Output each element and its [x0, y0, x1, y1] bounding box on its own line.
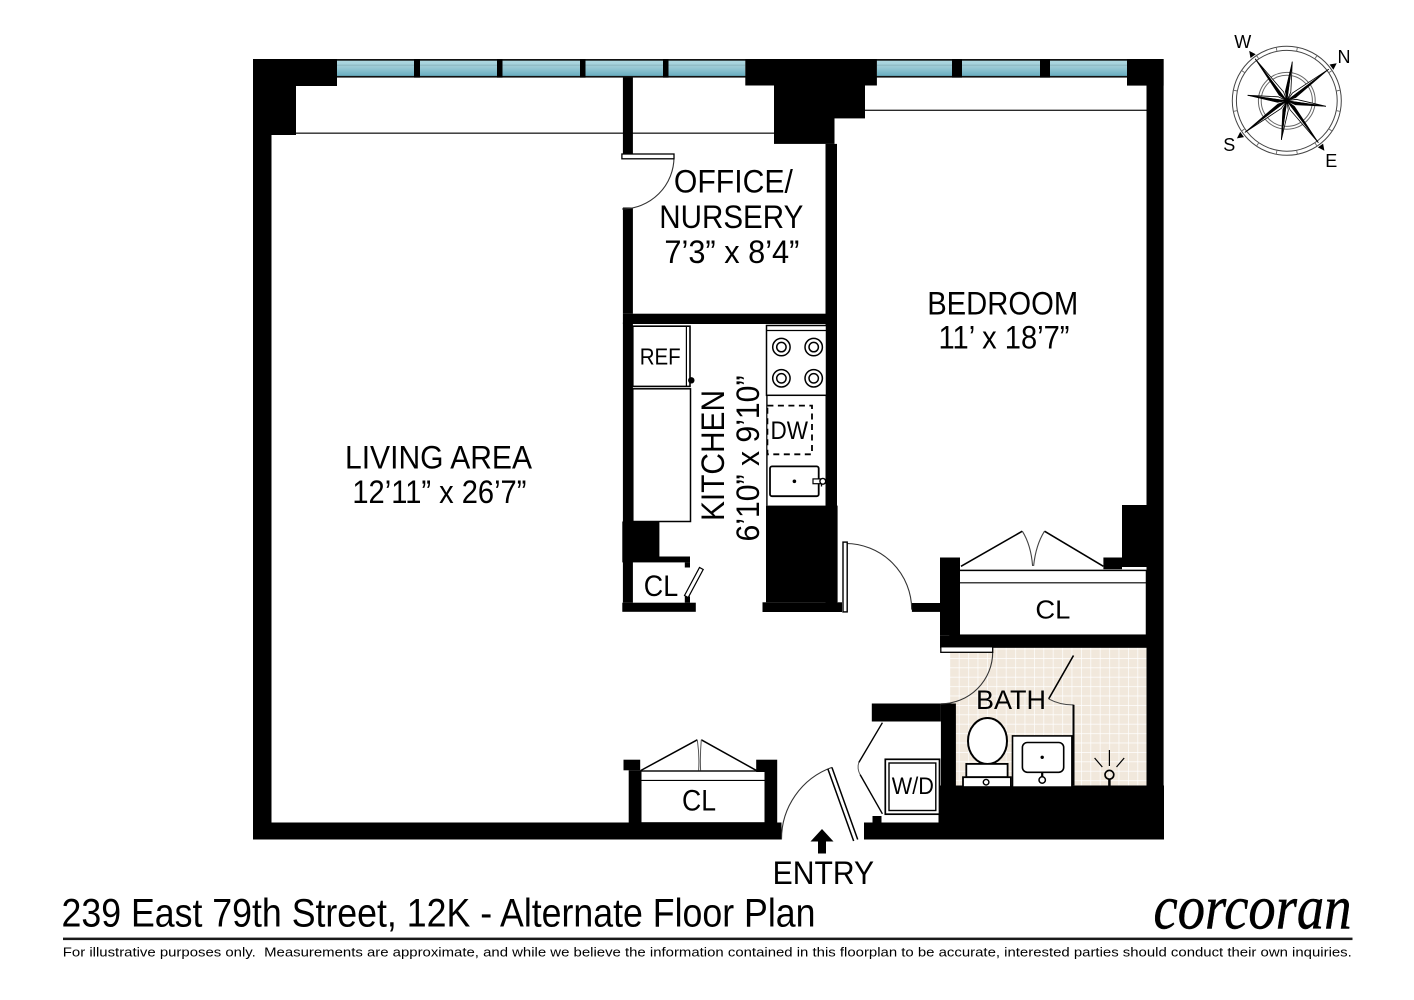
svg-text:corcoran: corcoran: [1154, 875, 1352, 943]
svg-text:For illustrative purposes only: For illustrative purposes only. Measurem…: [63, 945, 1352, 960]
svg-text:11’ x 18’7”: 11’ x 18’7”: [939, 320, 1070, 356]
svg-text:E: E: [1325, 151, 1337, 171]
svg-text:REF: REF: [640, 343, 681, 369]
svg-text:NURSERY: NURSERY: [659, 199, 803, 235]
svg-text:CL: CL: [644, 570, 678, 603]
svg-text:S: S: [1223, 135, 1235, 155]
svg-text:BATH: BATH: [976, 685, 1046, 715]
svg-text:239 East 79th Street, 12K - Al: 239 East 79th Street, 12K - Alternate Fl…: [62, 892, 816, 936]
svg-text:CL: CL: [1035, 595, 1070, 625]
svg-text:ENTRY: ENTRY: [773, 855, 875, 891]
svg-text:12’11” x 26’7”: 12’11” x 26’7”: [352, 474, 526, 510]
svg-text:KITCHEN: KITCHEN: [695, 390, 731, 521]
svg-text:OFFICE/: OFFICE/: [674, 164, 793, 200]
svg-text:7’3” x 8’4”: 7’3” x 8’4”: [664, 234, 799, 270]
svg-text:LIVING AREA: LIVING AREA: [345, 440, 533, 476]
svg-text:N: N: [1338, 47, 1351, 67]
svg-text:CL: CL: [682, 785, 716, 818]
svg-text:W: W: [1234, 32, 1251, 52]
svg-text:6’10” x 9’10”: 6’10” x 9’10”: [730, 376, 766, 542]
svg-text:DW: DW: [770, 417, 808, 445]
svg-text:BEDROOM: BEDROOM: [927, 286, 1078, 322]
svg-text:W/D: W/D: [892, 773, 934, 800]
